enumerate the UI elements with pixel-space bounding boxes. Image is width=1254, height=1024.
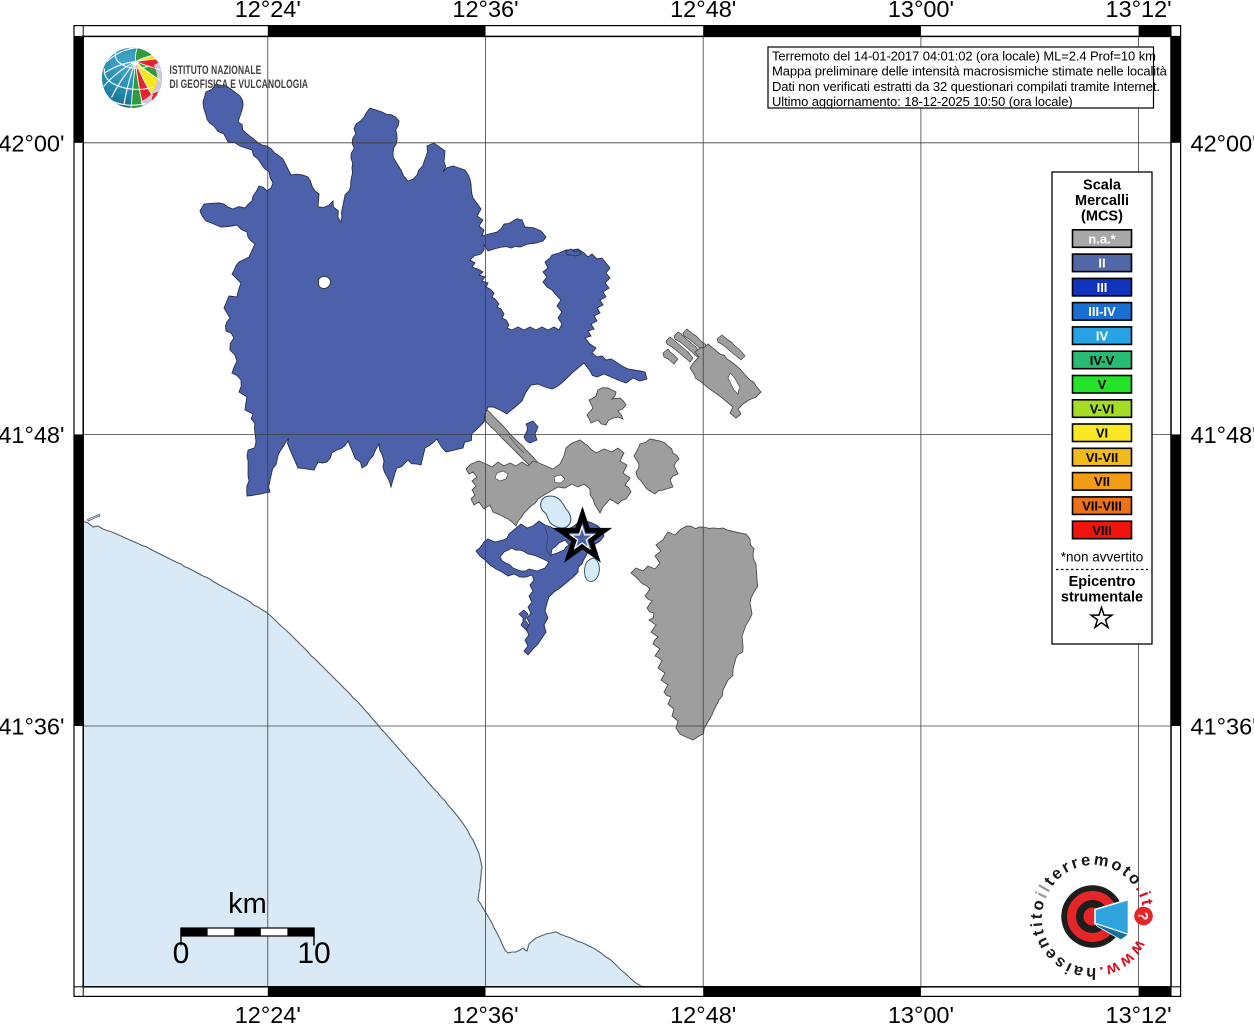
svg-text:VIII: VIII	[1092, 523, 1112, 538]
svg-text:strumentale: strumentale	[1061, 590, 1143, 606]
svg-text:IV-V: IV-V	[1090, 353, 1115, 368]
svg-text:IV: IV	[1096, 329, 1109, 344]
svg-text:(MCS): (MCS)	[1081, 209, 1123, 225]
svg-text:41°48': 41°48'	[0, 422, 65, 448]
svg-text:km: km	[228, 888, 267, 920]
svg-text:42°00': 42°00'	[1191, 130, 1254, 156]
svg-text:13°00': 13°00'	[888, 0, 954, 22]
svg-text:41°48': 41°48'	[1191, 422, 1254, 448]
svg-text:42°00': 42°00'	[0, 130, 65, 156]
svg-text:n.a.*: n.a.*	[1088, 231, 1116, 246]
svg-text:V: V	[1098, 377, 1107, 392]
svg-text:Mercalli: Mercalli	[1075, 193, 1129, 209]
svg-text:DI GEOFISICA E VULCANOLOGIA: DI GEOFISICA E VULCANOLOGIA	[170, 79, 309, 92]
svg-text:13°12': 13°12'	[1106, 1002, 1172, 1024]
svg-text:10: 10	[297, 937, 330, 970]
svg-text:0: 0	[173, 937, 190, 970]
svg-text:12°48': 12°48'	[670, 1002, 736, 1024]
svg-text:ISTITUTO NAZIONALE: ISTITUTO NAZIONALE	[170, 65, 262, 78]
svg-text:III: III	[1097, 280, 1108, 295]
svg-text:VII: VII	[1094, 474, 1110, 489]
svg-text:*non avvertito: *non avvertito	[1061, 550, 1144, 565]
svg-text:Terremoto del 14-01-2017 04:01: Terremoto del 14-01-2017 04:01:02 (ora l…	[772, 49, 1156, 64]
svg-text:12°36': 12°36'	[452, 0, 518, 22]
svg-text:12°24': 12°24'	[235, 0, 301, 22]
svg-text:12°24': 12°24'	[235, 1002, 301, 1024]
svg-text:13°00': 13°00'	[888, 1002, 954, 1024]
svg-text:Epicentro: Epicentro	[1069, 574, 1136, 590]
svg-text:Ultimo aggiornamento: 18-12-20: Ultimo aggiornamento: 18-12-2025 10:50 (…	[772, 94, 1073, 109]
svg-text:VI-VII: VI-VII	[1086, 450, 1119, 465]
svg-text:II: II	[1098, 256, 1105, 271]
svg-text:41°36': 41°36'	[0, 714, 65, 740]
svg-text:41°36': 41°36'	[1191, 714, 1254, 740]
svg-text:VII-VIII: VII-VIII	[1082, 499, 1122, 514]
svg-text:Dati non verificati estratti d: Dati non verificati estratti da 32 quest…	[772, 79, 1160, 94]
svg-text:12°36': 12°36'	[452, 1002, 518, 1024]
svg-text:Mappa preliminare delle intens: Mappa preliminare delle intensità macros…	[772, 64, 1168, 79]
svg-text:13°12': 13°12'	[1106, 0, 1172, 22]
svg-text:V-VI: V-VI	[1090, 401, 1115, 416]
svg-text:VI: VI	[1096, 426, 1108, 441]
svg-text:?: ?	[1136, 912, 1152, 921]
svg-text:Scala: Scala	[1083, 178, 1122, 194]
svg-text:12°48': 12°48'	[670, 0, 736, 22]
svg-text:III-IV: III-IV	[1088, 304, 1116, 319]
